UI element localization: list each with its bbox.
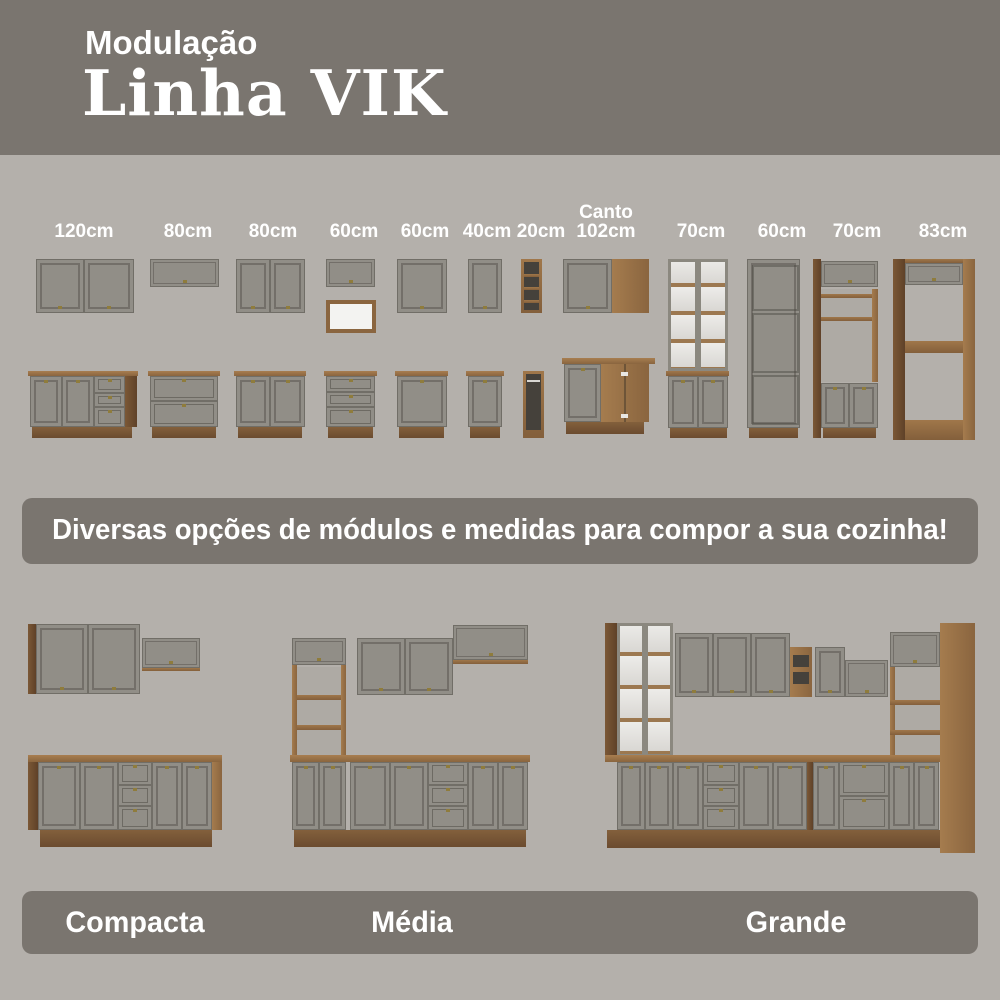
base-door xyxy=(673,762,703,830)
module-label-40cm: 40cm xyxy=(463,222,512,241)
drawer xyxy=(703,762,739,785)
glass-door xyxy=(645,623,673,757)
module-label-120cm: 120cm xyxy=(54,222,113,241)
corner-wall-door xyxy=(563,259,612,313)
wall-door xyxy=(751,633,790,697)
drawer xyxy=(703,785,739,806)
wall-door xyxy=(815,647,845,697)
bay-side xyxy=(341,665,346,755)
wall-door xyxy=(236,259,270,313)
glass-door xyxy=(617,623,645,757)
cabinet-bottom xyxy=(453,660,528,664)
module-label-70cm-b: 70cm xyxy=(833,222,882,241)
open-bay xyxy=(821,289,878,382)
base-door xyxy=(397,376,447,427)
base-door xyxy=(813,762,839,830)
base-door xyxy=(350,762,390,830)
kitchen-label-compacta: Compacta xyxy=(65,906,204,940)
drawer xyxy=(94,376,125,393)
plinth xyxy=(238,427,302,438)
flip-door xyxy=(845,660,888,697)
base-door xyxy=(30,376,62,427)
drawer xyxy=(118,762,152,785)
wall-door xyxy=(397,259,447,313)
plinth xyxy=(607,830,940,848)
flip-door xyxy=(890,632,940,667)
hinge xyxy=(621,372,628,376)
drawer xyxy=(150,401,218,427)
module-label-80cm-b: 80cm xyxy=(249,222,298,241)
bay-side xyxy=(292,665,297,755)
module-label-canto-102cm: Canto 102cm xyxy=(576,203,635,241)
plinth xyxy=(32,427,132,438)
message-banner: Diversas opções de módulos e medidas par… xyxy=(22,498,978,564)
drawer xyxy=(326,392,375,407)
base-door xyxy=(821,383,849,428)
plinth xyxy=(749,428,798,438)
wall-door xyxy=(84,259,134,313)
shelf xyxy=(524,300,539,303)
module-label-83cm: 83cm xyxy=(919,222,968,241)
side-panel xyxy=(212,762,222,830)
base-door xyxy=(319,762,346,830)
base-door xyxy=(80,762,118,830)
wall-door xyxy=(36,259,84,313)
drawer xyxy=(703,806,739,830)
base-door xyxy=(38,762,80,830)
base-door xyxy=(270,376,305,427)
base-door xyxy=(468,376,502,427)
base-door xyxy=(668,376,698,428)
page-title: Linha VIK xyxy=(82,56,447,130)
drawer xyxy=(94,407,125,427)
door-panel xyxy=(752,313,799,373)
shelf-band xyxy=(905,341,963,353)
door-panel xyxy=(752,375,799,425)
poster: Modulação Linha VIK 120cm 80cm 80cm 60cm… xyxy=(0,0,1000,1000)
base-door xyxy=(292,762,319,830)
wall-door xyxy=(675,633,713,697)
base-door xyxy=(698,376,728,428)
base-door xyxy=(617,762,645,830)
towel-rail xyxy=(527,380,540,382)
module-label-60cm-a: 60cm xyxy=(330,222,379,241)
shelf xyxy=(524,287,539,290)
shelf-slot xyxy=(793,655,809,667)
wall-door xyxy=(468,259,502,313)
drawer xyxy=(118,785,152,806)
kitchen-label-grande: Grande xyxy=(746,906,847,940)
base-door xyxy=(152,762,182,830)
countertop xyxy=(28,755,222,762)
bay-side xyxy=(890,667,895,757)
base-door xyxy=(182,762,212,830)
corner-wall-return xyxy=(612,259,649,313)
plinth xyxy=(566,422,644,434)
shelf xyxy=(297,725,341,730)
drawer xyxy=(839,796,889,830)
base-door xyxy=(889,762,914,830)
module-label-80cm-a: 80cm xyxy=(164,222,213,241)
glass-door xyxy=(698,259,728,371)
base-door xyxy=(914,762,939,830)
drawer xyxy=(118,806,152,830)
plinth xyxy=(670,428,727,438)
hinge xyxy=(621,414,628,418)
tall-side-panel xyxy=(940,623,975,853)
door-panel xyxy=(752,265,799,311)
shelf xyxy=(890,700,940,705)
side-panel xyxy=(893,259,905,440)
plinth xyxy=(294,830,526,847)
header-band: Modulação Linha VIK xyxy=(0,0,1000,155)
glass-door xyxy=(668,259,698,371)
shelf-slot xyxy=(793,672,809,684)
shelf xyxy=(890,730,940,735)
wall-door xyxy=(36,624,88,694)
shelf xyxy=(821,294,872,298)
shelf xyxy=(821,317,872,321)
side-panel xyxy=(605,623,617,757)
plinth xyxy=(328,427,373,438)
drawer xyxy=(428,762,468,785)
cabinet-bottom xyxy=(142,668,200,671)
base-door xyxy=(390,762,428,830)
base-door xyxy=(468,762,498,830)
module-label-60cm-c: 60cm xyxy=(758,222,807,241)
base-door xyxy=(498,762,528,830)
wall-door xyxy=(270,259,305,313)
bottom-band xyxy=(905,420,963,440)
module-label-70cm-a: 70cm xyxy=(677,222,726,241)
drawer xyxy=(326,376,375,392)
drawer xyxy=(428,806,468,830)
base-door xyxy=(739,762,773,830)
countertop xyxy=(290,755,530,762)
side-panel xyxy=(28,624,36,694)
bay-side xyxy=(872,289,878,382)
base-door xyxy=(849,383,878,428)
flip-door xyxy=(326,259,375,287)
open-niche xyxy=(326,300,376,333)
flip-door xyxy=(150,259,219,287)
plinth xyxy=(823,428,876,438)
plinth xyxy=(470,427,500,438)
base-interior xyxy=(526,374,541,430)
plinth xyxy=(40,830,212,847)
open-bay xyxy=(297,667,341,755)
plinth xyxy=(152,427,216,438)
side-panel xyxy=(813,259,821,438)
kitchen-label-media: Média xyxy=(371,906,453,940)
drawer xyxy=(839,762,889,796)
countertop xyxy=(605,755,940,762)
side-panel xyxy=(28,762,38,830)
side-panel xyxy=(963,259,975,440)
plinth xyxy=(399,427,444,438)
wall-door xyxy=(713,633,751,697)
flip-door xyxy=(821,261,878,287)
wall-door xyxy=(357,638,405,695)
flip-door xyxy=(453,625,528,660)
module-label-20cm: 20cm xyxy=(517,222,566,241)
base-door xyxy=(236,376,270,427)
wall-door xyxy=(88,624,140,694)
base-door xyxy=(62,376,94,427)
open-bay xyxy=(890,667,940,757)
shelf xyxy=(524,274,539,277)
base-door xyxy=(645,762,673,830)
drawer xyxy=(326,407,375,427)
flip-door xyxy=(292,638,346,665)
flip-door xyxy=(905,263,963,285)
wall-door xyxy=(405,638,453,695)
drawer xyxy=(94,393,125,407)
message-banner-text: Diversas opções de módulos e medidas par… xyxy=(52,514,948,547)
drawer xyxy=(150,376,218,401)
flip-door xyxy=(142,638,200,668)
side-panel xyxy=(125,376,137,427)
module-label-60cm-b: 60cm xyxy=(401,222,450,241)
shelf xyxy=(297,695,341,700)
drawer xyxy=(428,785,468,806)
corner-base-door xyxy=(564,364,601,422)
base-door xyxy=(773,762,807,830)
